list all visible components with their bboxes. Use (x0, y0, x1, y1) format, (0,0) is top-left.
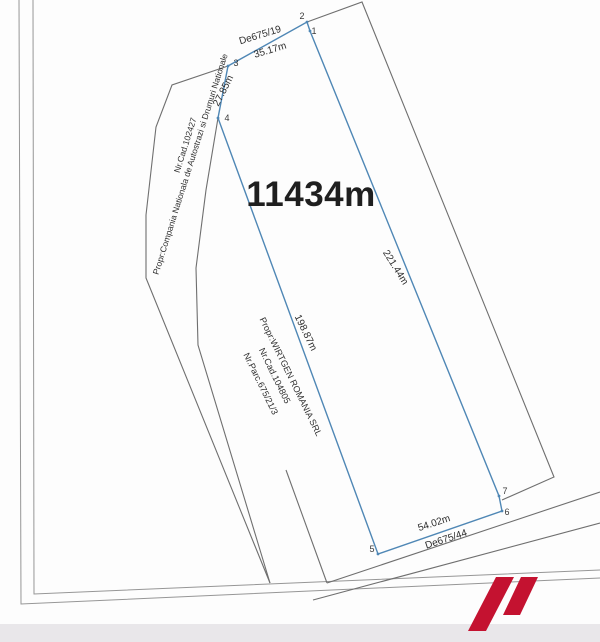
point-label-7: 7 (502, 486, 507, 496)
cadastral-plan-page: De675/19 35.17m 2 1 3 4 5 6 7 27.85m Nr.… (0, 0, 600, 642)
point-label-6: 6 (504, 507, 509, 517)
vertex-dot-3 (227, 65, 230, 68)
point-label-2: 2 (299, 11, 304, 21)
vertex-dot-2 (306, 21, 309, 24)
plan-drawing: De675/19 35.17m 2 1 3 4 5 6 7 27.85m Nr.… (0, 0, 600, 642)
point-label-1: 1 (311, 26, 316, 36)
vertex-dot-4 (217, 117, 220, 120)
point-label-4: 4 (224, 113, 229, 123)
point-label-3: 3 (233, 58, 238, 68)
footer-band (0, 624, 600, 642)
vertex-dot-5 (377, 553, 380, 556)
point-label-5: 5 (369, 544, 374, 554)
parcel-area-label: 11434m (246, 175, 376, 214)
vertex-dot-6 (501, 510, 504, 513)
vertex-dot-7 (498, 495, 501, 498)
